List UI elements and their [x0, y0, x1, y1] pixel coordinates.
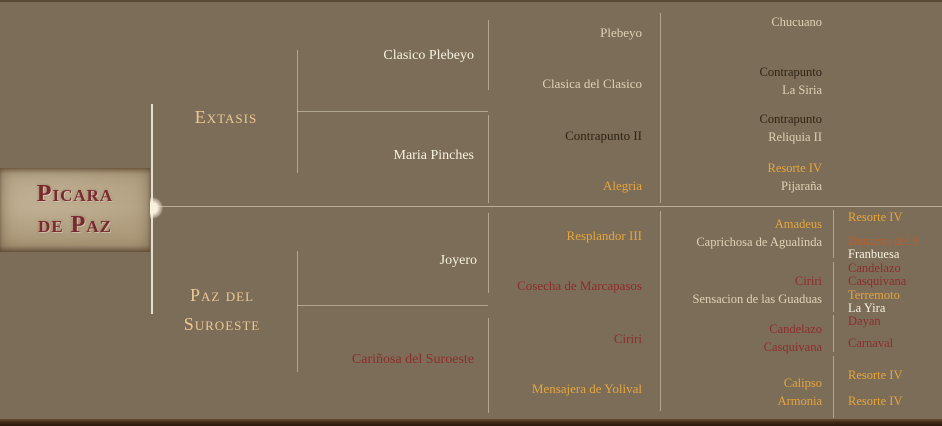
- ancestor-pair: Contrapunto La Siria: [760, 63, 823, 99]
- ancestor-chucuano[interactable]: Chucuano: [771, 13, 822, 31]
- ancestor-pair: Ciriri Sensacion de las Guaduas: [693, 272, 822, 308]
- ancestor-pair: Chucuano: [771, 13, 822, 31]
- connector-gen3-bracket-top: [297, 50, 298, 173]
- ancestor-resorte-iv[interactable]: Resorte IV: [848, 368, 903, 382]
- ancestor-pair: Calipso Armonia: [778, 374, 822, 410]
- pedigree-chart: Picara de Paz Extasis Paz del Suroeste C…: [0, 0, 942, 426]
- connector-gen4-bracket: [488, 20, 489, 90]
- ancestor-durazno-del-8[interactable]: Durazno del 8: [848, 234, 919, 248]
- ancestor-la-siria[interactable]: La Siria: [760, 81, 823, 99]
- connector-gen6-bracket: [833, 356, 834, 418]
- ancestor-resorte-iv[interactable]: Resorte IV: [768, 159, 823, 177]
- ancestor-resorte-iv[interactable]: Resorte IV: [848, 394, 903, 408]
- connector-gen4-bracket: [488, 213, 489, 293]
- connector-gen3-bracket-bottom: [297, 251, 298, 372]
- ancestor-name-line: Suroeste: [148, 310, 296, 339]
- ancestor-candelazo[interactable]: Candelazo: [764, 320, 822, 338]
- ancestor-cosecha-de-marcapasos[interactable]: Cosecha de Marcapasos: [517, 278, 642, 294]
- ancestor-mensajera-de-yolival[interactable]: Mensajera de Yolival: [532, 381, 642, 397]
- connector-sire-divider: [297, 111, 488, 112]
- ancestor-carinosa-del-suroeste[interactable]: Cariñosa del Suroeste: [352, 352, 474, 368]
- top-border: [0, 0, 942, 2]
- ancestor-casquivana[interactable]: Casquivana: [764, 338, 822, 356]
- ancestor-clasico-plebeyo[interactable]: Clasico Plebeyo: [383, 48, 474, 64]
- ancestor-calipso[interactable]: Calipso: [778, 374, 822, 392]
- ancestor-contrapunto[interactable]: Contrapunto: [760, 110, 823, 128]
- ancestor-resorte-iv[interactable]: Resorte IV: [848, 210, 903, 224]
- ancestor-la-yira[interactable]: La Yira: [848, 301, 885, 315]
- ancestor-caprichosa-de-agualinda[interactable]: Caprichosa de Agualinda: [696, 233, 822, 251]
- ancestor-pair: Resorte IV Pijaraña: [768, 159, 823, 195]
- connector-gen5-bracket: [660, 211, 661, 411]
- plate-name-line2: de Paz: [38, 210, 112, 241]
- ancestor-paz-del-suroeste[interactable]: Paz del Suroeste: [148, 281, 296, 339]
- connector-dam-divider: [297, 305, 488, 306]
- ancestor-reliquia-ii[interactable]: Reliquia II: [760, 128, 823, 146]
- ancestor-clasica-del-clasico[interactable]: Clasica del Clasico: [542, 76, 642, 92]
- ancestor-contrapunto-ii[interactable]: Contrapunto II: [565, 128, 642, 144]
- ancestor-extasis[interactable]: Extasis: [155, 103, 297, 132]
- ancestor-pair: Candelazo Casquivana: [764, 320, 822, 356]
- ancestor-candelazo[interactable]: Candelazo: [848, 261, 901, 275]
- ancestor-name-line: Paz del: [148, 281, 296, 310]
- ancestor-pair: Contrapunto Reliquia II: [760, 110, 823, 146]
- ancestor-terremoto[interactable]: Terremoto: [848, 288, 900, 302]
- ancestor-joyero[interactable]: Joyero: [440, 253, 477, 269]
- plate-name-line1: Picara: [37, 179, 113, 210]
- horse-name-plate: Picara de Paz: [0, 168, 150, 252]
- ancestor-amadeus[interactable]: Amadeus: [696, 215, 822, 233]
- ancestor-armonia[interactable]: Armonia: [778, 392, 822, 410]
- connector-gen6-bracket: [833, 210, 834, 258]
- ancestor-franbuesa[interactable]: Franbuesa: [848, 247, 899, 261]
- connector-gen6-bracket: [833, 262, 834, 312]
- ancestor-plebeyo[interactable]: Plebeyo: [600, 25, 642, 41]
- ancestor-maria-pinches[interactable]: Maria Pinches: [394, 148, 474, 164]
- ancestor-alegria[interactable]: Alegria: [603, 178, 642, 194]
- ancestor-pair: Amadeus Caprichosa de Agualinda: [696, 215, 822, 251]
- ancestor-sensacion-de-las-guaduas[interactable]: Sensacion de las Guaduas: [693, 290, 822, 308]
- ancestor-casquivana[interactable]: Casquivana: [848, 274, 906, 288]
- ancestor-dayan[interactable]: Dayan: [848, 314, 881, 328]
- connector-gen6-bracket: [833, 315, 834, 352]
- ancestor-resplandor-iii[interactable]: Resplandor III: [567, 228, 642, 244]
- connector-main-horizontal: [152, 206, 942, 207]
- ancestor-ciriri[interactable]: Ciriri: [614, 331, 642, 347]
- bottom-border: [0, 419, 942, 426]
- ancestor-contrapunto[interactable]: Contrapunto: [760, 63, 823, 81]
- ancestor-carnaval[interactable]: Carnaval: [848, 336, 893, 350]
- connector-gen4-bracket: [488, 318, 489, 413]
- ancestor-pijarana[interactable]: Pijaraña: [768, 177, 823, 195]
- connector-gen4-bracket: [488, 115, 489, 203]
- ancestor-ciriri[interactable]: Ciriri: [693, 272, 822, 290]
- connector-gen5-bracket: [660, 13, 661, 203]
